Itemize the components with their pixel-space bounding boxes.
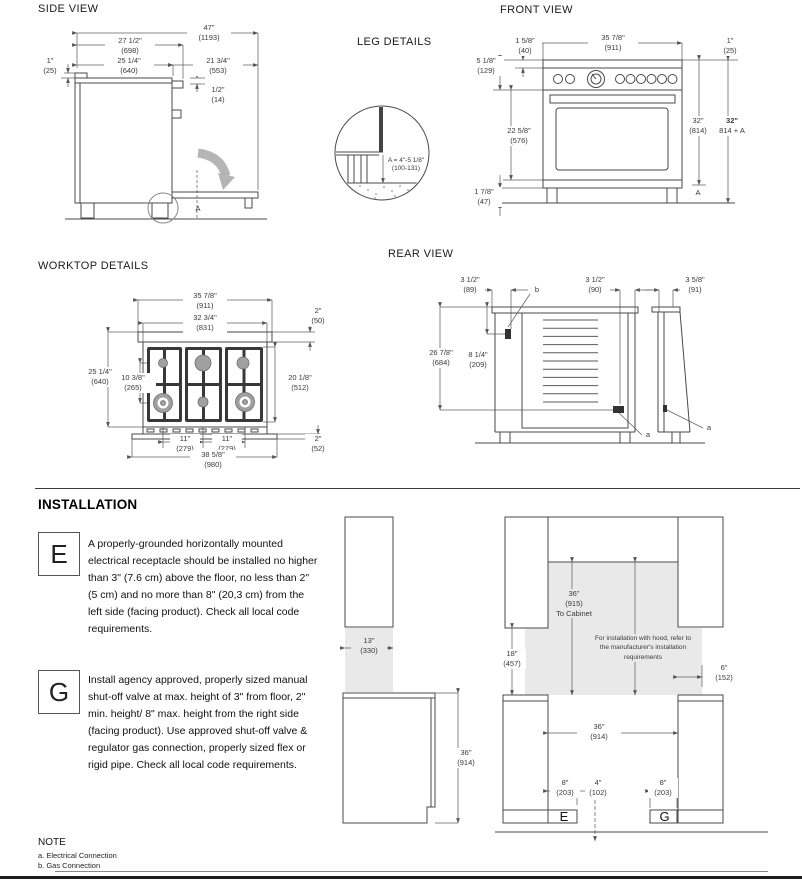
dim-front-47: 1 7/8"(47) [466,187,502,207]
front-view-title: FRONT VIEW [500,4,573,16]
gas-instructions: Install agency approved, properly sized … [88,672,320,774]
dim-front-576: 22 5/8"(576) [498,126,540,146]
dim-rear-209: 8 1/4"(209) [462,350,494,370]
note-item-b: b. Gas Connection [38,861,100,870]
dim-front-25: 1"(25) [716,36,744,56]
front-leg-a-label: A [691,188,705,198]
worktop-details-title: WORKTOP DETAILS [38,260,149,272]
leg-detail-formula: A = 4"-5 1/8"(100-131) [380,157,432,174]
rear-view-title: REAR VIEW [388,248,453,260]
dim-install-to-cabinet: 36"(915)To Cabinet [549,589,599,618]
dim-install-203b: 8"(203) [648,778,678,798]
dim-worktop-512: 20 1/8"(512) [277,373,323,393]
footer-thick-rule [0,876,802,879]
dim-side-698: 27 1/2"(698) [105,36,155,56]
dim-worktop-52: 2"(52) [305,434,331,454]
install-e-marker: E [549,809,579,824]
rear-label-b: b [532,285,542,295]
dim-side-14: 1/2"(14) [200,85,236,105]
side-leg-a-label: A [191,204,205,214]
footer-thin-rule [55,871,768,872]
side-view-range-outline [65,73,267,223]
note-title: NOTE [38,837,66,848]
side-view-title: SIDE VIEW [38,3,98,15]
rear-label-a1: a [643,430,653,440]
dim-worktop-50: 2"(50) [305,306,331,326]
install-left-diagram [340,515,475,835]
dim-front-814-plus-a: 32"814 + A [710,116,754,136]
dim-install-914-right: 36"(914) [577,722,621,742]
dim-install-102: 4"(102) [585,778,611,798]
leg-details-title: LEG DETAILS [357,36,432,48]
rear-view-outline [475,307,705,443]
dim-side-total-depth: 47"(1193) [187,23,231,43]
dim-install-457: 18"(457) [498,649,526,669]
dim-worktop-831: 32 3/4"(831) [183,313,227,333]
dim-install-914-left: 36"(914) [447,748,485,768]
dim-side-553: 21 3/4"(553) [193,56,243,76]
electrical-instructions: A properly-grounded horizontally mounted… [88,536,320,638]
install-g-marker: G [651,809,678,824]
control-knobs [554,71,678,88]
door-swing-arrow-icon [198,153,235,190]
rear-label-a2: a [704,423,714,433]
electrical-connection-marker [613,406,624,413]
dim-rear-91: 3 5/8"(91) [680,275,710,295]
note-item-a: a. Electrical Connection [38,851,117,860]
dim-rear-90: 3 1/2"(90) [580,275,610,295]
dim-install-203a: 8"(203) [550,778,580,798]
dim-front-814: 32"(814) [683,116,713,136]
dim-worktop-265: 10 3/8"(265) [110,373,156,393]
dim-worktop-980: 38 5/8"(980) [190,450,236,470]
dim-front-911: 35 7/8"(911) [588,33,638,53]
hood-note: For installation with hood, refer to the… [590,634,696,662]
dim-rear-684: 26 7/8"(684) [424,348,458,368]
spec-sheet-page: SIDE VIEW FRONT VIEW LEG DETAILS WORKTOP… [0,0,802,883]
installation-heading: INSTALLATION [38,497,137,512]
leg-details-drawing [330,95,460,205]
dim-rear-89: 3 1/2"(89) [455,275,485,295]
gas-connection-marker [505,329,511,339]
dim-front-40: 1 5/8"(40) [508,36,542,56]
gas-key-box: G [38,670,80,714]
side-view-drawing [35,20,305,230]
dim-front-129: 5 1/8"(129) [468,56,504,76]
dim-install-330: 13"(330) [351,636,387,656]
dim-side-25: 1"(25) [36,56,64,76]
dim-worktop-911: 35 7/8"(911) [183,291,227,311]
installation-divider [35,488,800,489]
electrical-key-box: E [38,532,80,576]
dim-side-640: 25 1/4"(640) [104,56,154,76]
rear-vent-slats [543,320,598,402]
dim-install-152: 6"(152) [709,663,739,683]
electrical-connection-side-marker [663,405,667,412]
